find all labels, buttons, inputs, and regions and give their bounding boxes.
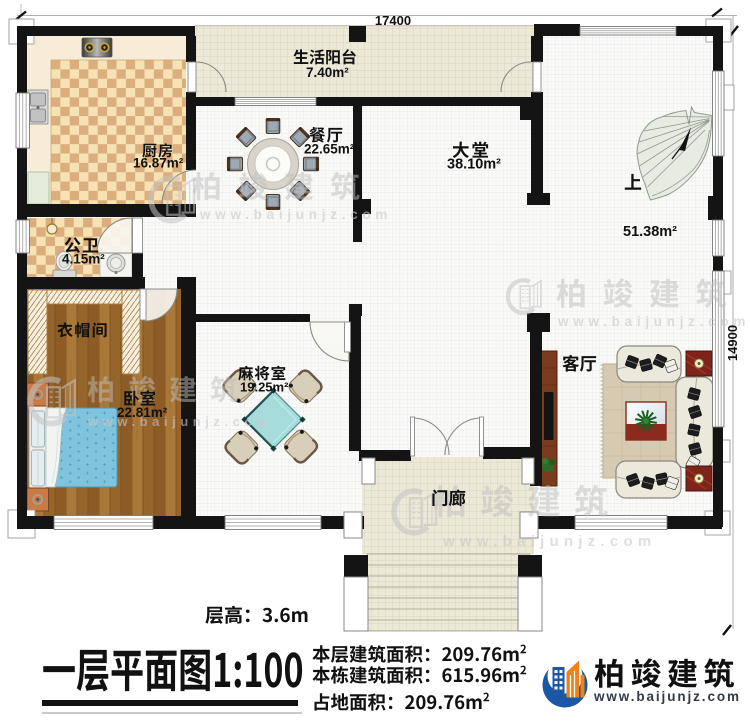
svg-text:16.87m²: 16.87m² <box>133 156 184 171</box>
svg-text:14900: 14900 <box>725 325 740 361</box>
svg-text:17400: 17400 <box>375 13 411 28</box>
svg-text:www.baijunjz.com: www.baijunjz.com <box>87 414 273 429</box>
svg-text:51.38m²: 51.38m² <box>623 224 677 240</box>
svg-text:4.15m²: 4.15m² <box>62 252 105 267</box>
svg-text:www.baijunjz.com: www.baijunjz.com <box>557 314 750 329</box>
svg-text:www.baijunjz.com: www.baijunjz.com <box>593 689 741 704</box>
svg-text:38.10m²: 38.10m² <box>447 157 501 173</box>
svg-text:22.65m²: 22.65m² <box>304 142 355 157</box>
svg-text:22.81m²: 22.81m² <box>117 405 168 420</box>
svg-text:19.25m²: 19.25m² <box>240 380 289 395</box>
svg-text:www.baijunjz.com: www.baijunjz.com <box>442 533 656 550</box>
svg-text:www.baijunjz.com: www.baijunjz.com <box>199 207 392 222</box>
svg-text:7.40m²: 7.40m² <box>306 65 349 80</box>
